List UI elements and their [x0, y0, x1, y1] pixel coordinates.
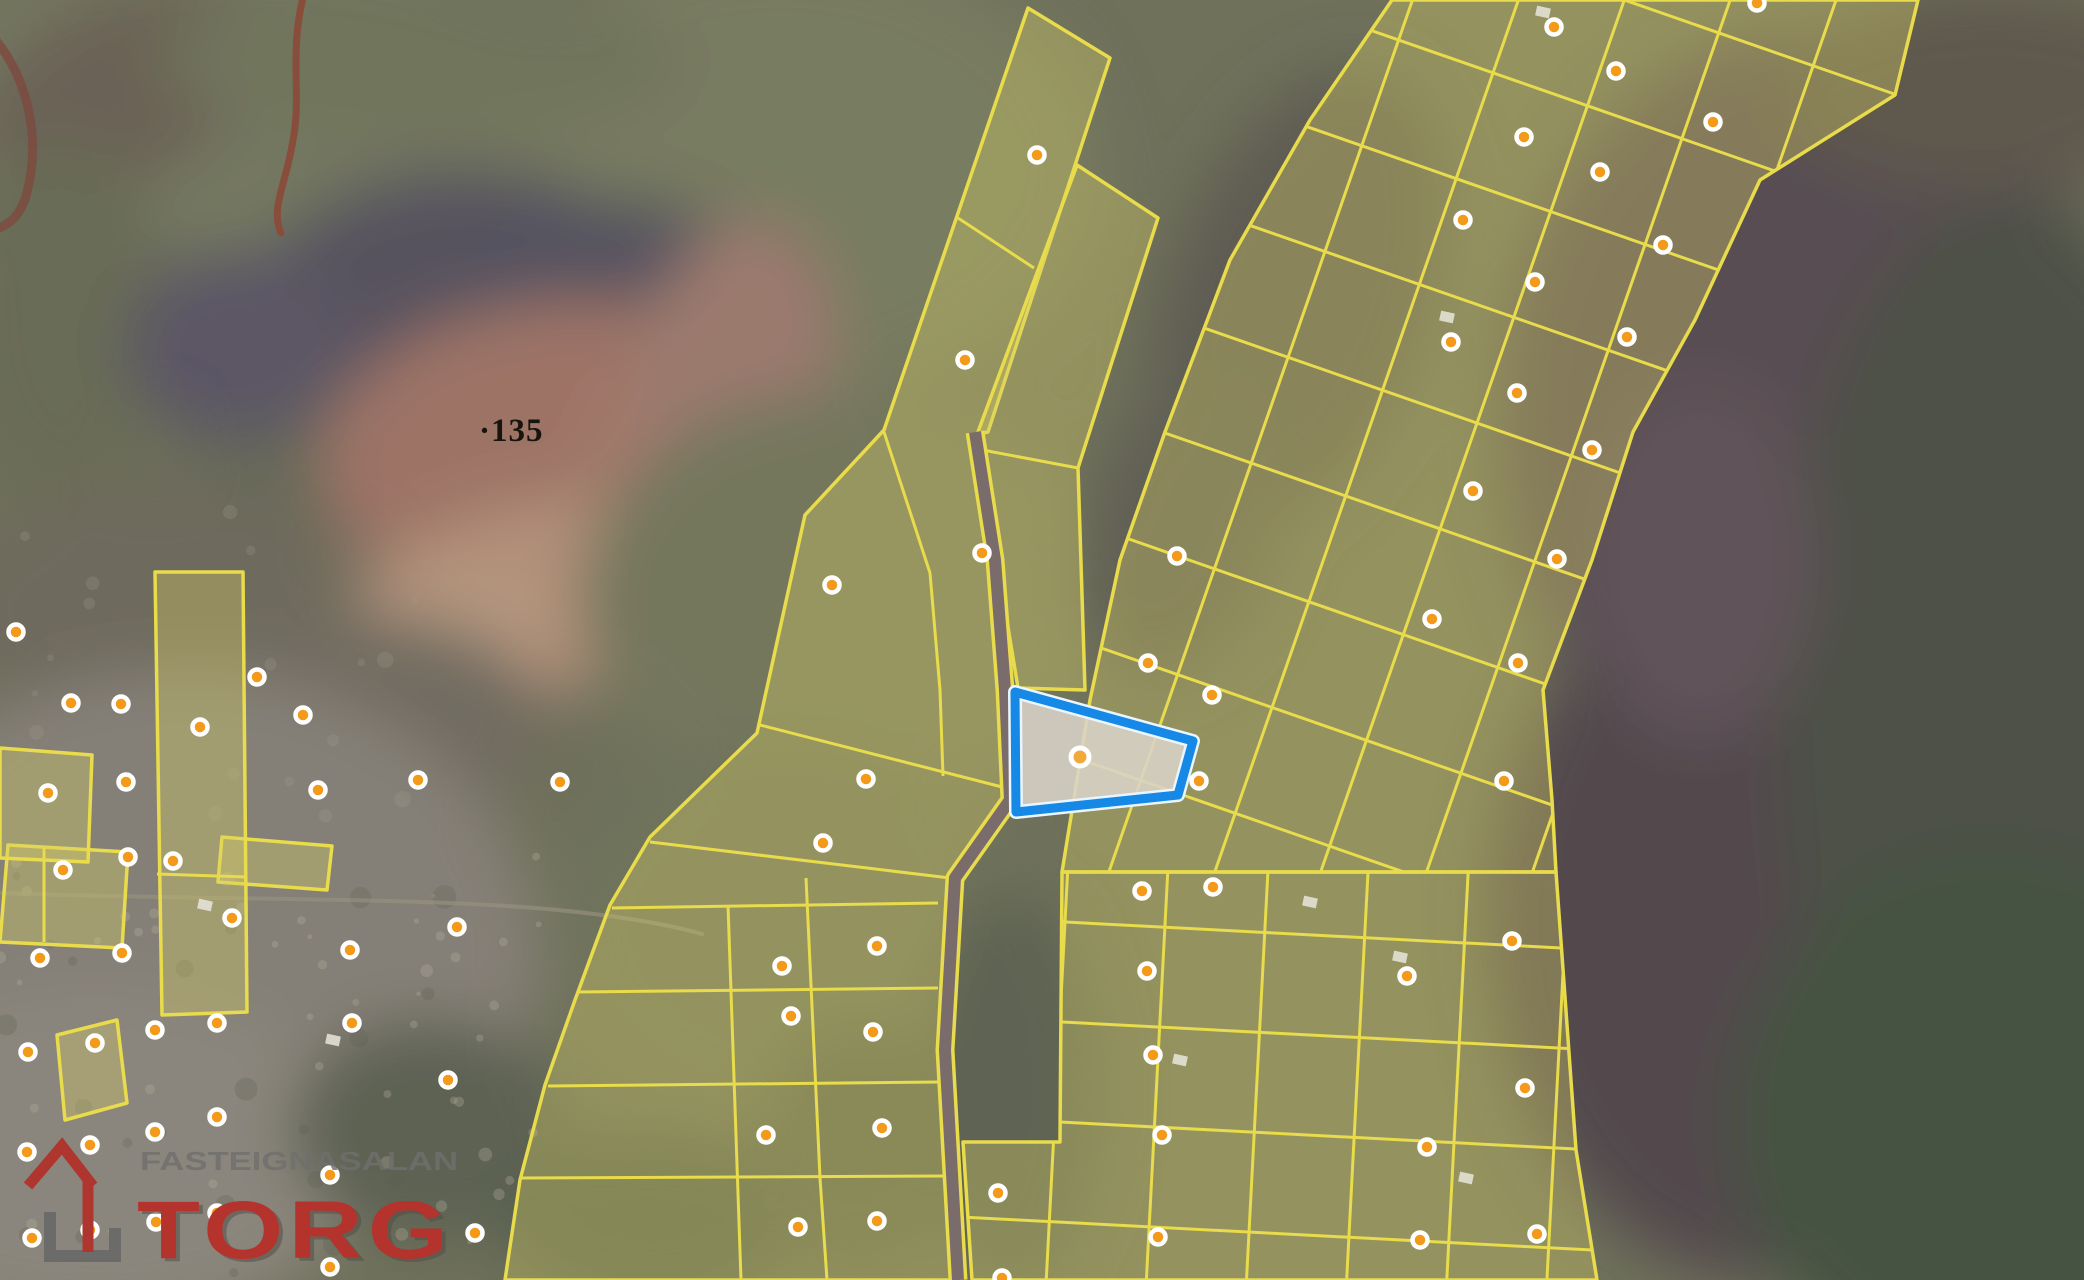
- parcel-marker[interactable]: [958, 353, 973, 368]
- parcel-marker[interactable]: [816, 836, 831, 851]
- parcel-marker[interactable]: [553, 775, 568, 790]
- parcel-marker[interactable]: [1547, 20, 1562, 35]
- parcel-marker[interactable]: [225, 911, 240, 926]
- parcel-marker[interactable]: [119, 775, 134, 790]
- parcel-marker[interactable]: [870, 939, 885, 954]
- parcel-marker[interactable]: [1155, 1128, 1170, 1143]
- parcel-marker[interactable]: [1141, 656, 1156, 671]
- parcel-marker[interactable]: [148, 1125, 163, 1140]
- parcel-marker[interactable]: [1511, 656, 1526, 671]
- parcel-marker[interactable]: [1530, 1227, 1545, 1242]
- parcel-marker[interactable]: [343, 943, 358, 958]
- parcel-marker[interactable]: [870, 1214, 885, 1229]
- parcel-marker[interactable]: [859, 772, 874, 787]
- parcel-marker[interactable]: [83, 1138, 98, 1153]
- parcel-marker[interactable]: [1030, 148, 1045, 163]
- parcel-marker[interactable]: [450, 920, 465, 935]
- parcel-marker[interactable]: [1656, 238, 1671, 253]
- parcel-marker[interactable]: [1413, 1233, 1428, 1248]
- parcel-marker[interactable]: [825, 578, 840, 593]
- parcel-marker[interactable]: [114, 697, 129, 712]
- parcel-marker[interactable]: [1609, 64, 1624, 79]
- parcel-marker[interactable]: [866, 1025, 881, 1040]
- parcel-marker[interactable]: [791, 1220, 806, 1235]
- parcel-marker[interactable]: [875, 1121, 890, 1136]
- parcel-marker[interactable]: [1444, 335, 1459, 350]
- parcel-marker[interactable]: [1517, 130, 1532, 145]
- parcel-marker[interactable]: [250, 670, 265, 685]
- parcel-marker[interactable]: [1706, 115, 1721, 130]
- parcel-marker[interactable]: [1146, 1048, 1161, 1063]
- parcel-marker[interactable]: [296, 708, 311, 723]
- parcel-marker[interactable]: [1528, 275, 1543, 290]
- parcel-marker[interactable]: [25, 1231, 40, 1246]
- parcel-marker[interactable]: [775, 959, 790, 974]
- parcel-marker[interactable]: [166, 854, 181, 869]
- parcel-marker[interactable]: [21, 1045, 36, 1060]
- parcel-marker[interactable]: [1456, 213, 1471, 228]
- map-viewport[interactable]: ·135 FASTEIGNASALAN TORG TORG: [0, 0, 2084, 1280]
- parcel-marker[interactable]: [411, 773, 426, 788]
- parcel-marker[interactable]: [1750, 0, 1765, 11]
- parcel-marker[interactable]: [121, 850, 136, 865]
- parcel-marker[interactable]: [41, 786, 56, 801]
- parcel-marker[interactable]: [1505, 934, 1520, 949]
- parcel-marker[interactable]: [56, 863, 71, 878]
- parcel-marker[interactable]: [991, 1186, 1006, 1201]
- parcel-marker[interactable]: [1170, 549, 1185, 564]
- parcel-marker[interactable]: [1420, 1140, 1435, 1155]
- selected-parcel-marker[interactable]: [1071, 748, 1089, 766]
- parcel-marker[interactable]: [995, 1271, 1010, 1280]
- parcel-marker[interactable]: [1140, 964, 1155, 979]
- parcel-marker[interactable]: [759, 1128, 774, 1143]
- parcel-marker[interactable]: [345, 1016, 360, 1031]
- parcel-marker[interactable]: [20, 1145, 35, 1160]
- parcel-marker[interactable]: [1135, 884, 1150, 899]
- parcel-marker[interactable]: [1518, 1081, 1533, 1096]
- parcel-marker[interactable]: [1497, 774, 1512, 789]
- parcel-marker[interactable]: [1585, 443, 1600, 458]
- parcel-marker[interactable]: [1466, 484, 1481, 499]
- parcel-marker[interactable]: [1206, 880, 1221, 895]
- parcel-marker[interactable]: [210, 1016, 225, 1031]
- parcel-marker[interactable]: [193, 720, 208, 735]
- parcel-marker[interactable]: [1400, 969, 1415, 984]
- parcel-marker[interactable]: [115, 946, 130, 961]
- parcel-marker[interactable]: [1425, 612, 1440, 627]
- parcel-marker[interactable]: [64, 696, 79, 711]
- parcel-marker[interactable]: [1550, 552, 1565, 567]
- parcel-marker[interactable]: [441, 1073, 456, 1088]
- parcel-marker[interactable]: [210, 1110, 225, 1125]
- parcel-marker[interactable]: [148, 1023, 163, 1038]
- parcel-lot-strip: [155, 572, 247, 1015]
- parcel-marker[interactable]: [1151, 1230, 1166, 1245]
- logo-subtitle: FASTEIGNASALAN: [140, 1146, 458, 1176]
- parcel-marker[interactable]: [1192, 774, 1207, 789]
- parcel-lot-b: [0, 748, 92, 862]
- map-canvas[interactable]: ·135 FASTEIGNASALAN TORG TORG: [0, 0, 2084, 1280]
- parcel-marker[interactable]: [9, 625, 24, 640]
- parcel-marker[interactable]: [975, 546, 990, 561]
- parcel-marker[interactable]: [1620, 330, 1635, 345]
- parcel-marker[interactable]: [1205, 688, 1220, 703]
- parcel-marker[interactable]: [468, 1226, 483, 1241]
- parcel-marker[interactable]: [1593, 165, 1608, 180]
- parcel-marker[interactable]: [33, 951, 48, 966]
- parcel-marker[interactable]: [1510, 386, 1525, 401]
- parcel-marker[interactable]: [784, 1009, 799, 1024]
- parcel-marker[interactable]: [88, 1036, 103, 1051]
- parcel-marker[interactable]: [311, 783, 326, 798]
- elevation-label: ·135: [479, 413, 544, 449]
- logo-title: TORG: [137, 1185, 453, 1276]
